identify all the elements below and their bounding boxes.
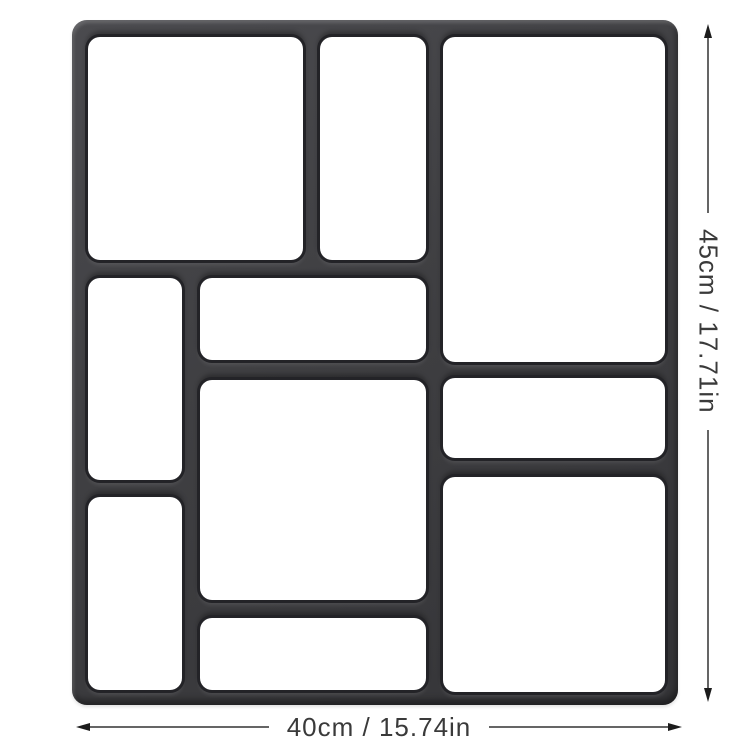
product-image: 40cm / 15.74in 45cm / 17.71in <box>0 0 750 750</box>
cavity-top-middle <box>320 37 426 260</box>
cavity-bottom-right-square <box>443 477 665 692</box>
arrow-left-icon <box>76 723 90 731</box>
arrow-up-icon <box>704 24 712 38</box>
cavity-bottom-center <box>200 618 426 690</box>
width-dimension-label: 40cm / 15.74in <box>287 712 472 743</box>
paver-mold <box>72 20 678 705</box>
dimension-line-segment <box>90 726 269 728</box>
cavity-center-square <box>200 380 426 600</box>
width-dimension-annotation: 40cm / 15.74in <box>76 714 682 740</box>
arrow-down-icon <box>704 688 712 702</box>
cavity-bottom-left <box>88 497 182 690</box>
cavity-mid-right <box>443 378 665 458</box>
cavity-mid-left <box>88 278 182 480</box>
arrow-right-icon <box>668 723 682 731</box>
dimension-line-segment <box>707 38 709 213</box>
cavity-top-right-tall <box>443 37 665 362</box>
height-dimension-annotation: 45cm / 17.71in <box>694 24 722 702</box>
cavity-mid-center <box>200 278 426 360</box>
cavity-top-left-square <box>88 37 303 260</box>
height-dimension-label: 45cm / 17.71in <box>693 229 724 414</box>
dimension-line-segment <box>489 726 668 728</box>
dimension-line-segment <box>707 430 709 688</box>
